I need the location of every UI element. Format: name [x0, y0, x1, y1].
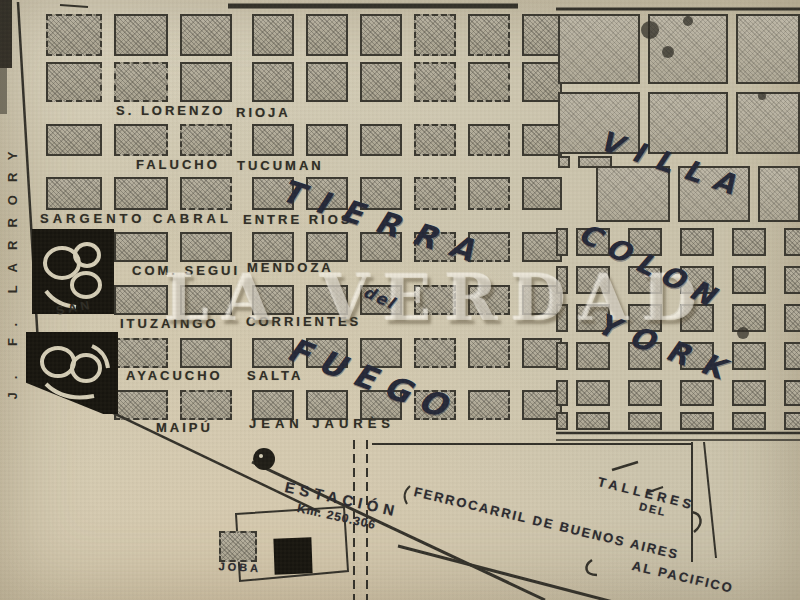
historical-town-map: S. LORENZO FALUCHO SARGENTO CABRAL COM. …	[0, 0, 800, 600]
street-label-falucho: FALUCHO	[136, 157, 220, 172]
partial-edge-label: JOBA	[218, 560, 261, 574]
street-label-sargento-cabral: SARGENTO CABRAL	[40, 211, 232, 226]
street-label-jf-larrory: J. F. LARRORY	[5, 69, 27, 469]
street-label-maipu: MAIPÚ	[156, 420, 213, 435]
street-label-ayacucho: AYACUCHO	[126, 368, 223, 383]
tree-symbol	[253, 448, 275, 470]
street-label-tucuman: TUCUMAN	[237, 158, 324, 173]
street-label-jean-jaures: JEAN JAURÈS	[249, 416, 395, 431]
street-label-rioja: RIOJA	[236, 105, 291, 120]
street-label-s-lorenzo: S. LORENZO	[116, 103, 225, 118]
station-yard-block	[219, 531, 257, 562]
station-building	[273, 537, 312, 574]
